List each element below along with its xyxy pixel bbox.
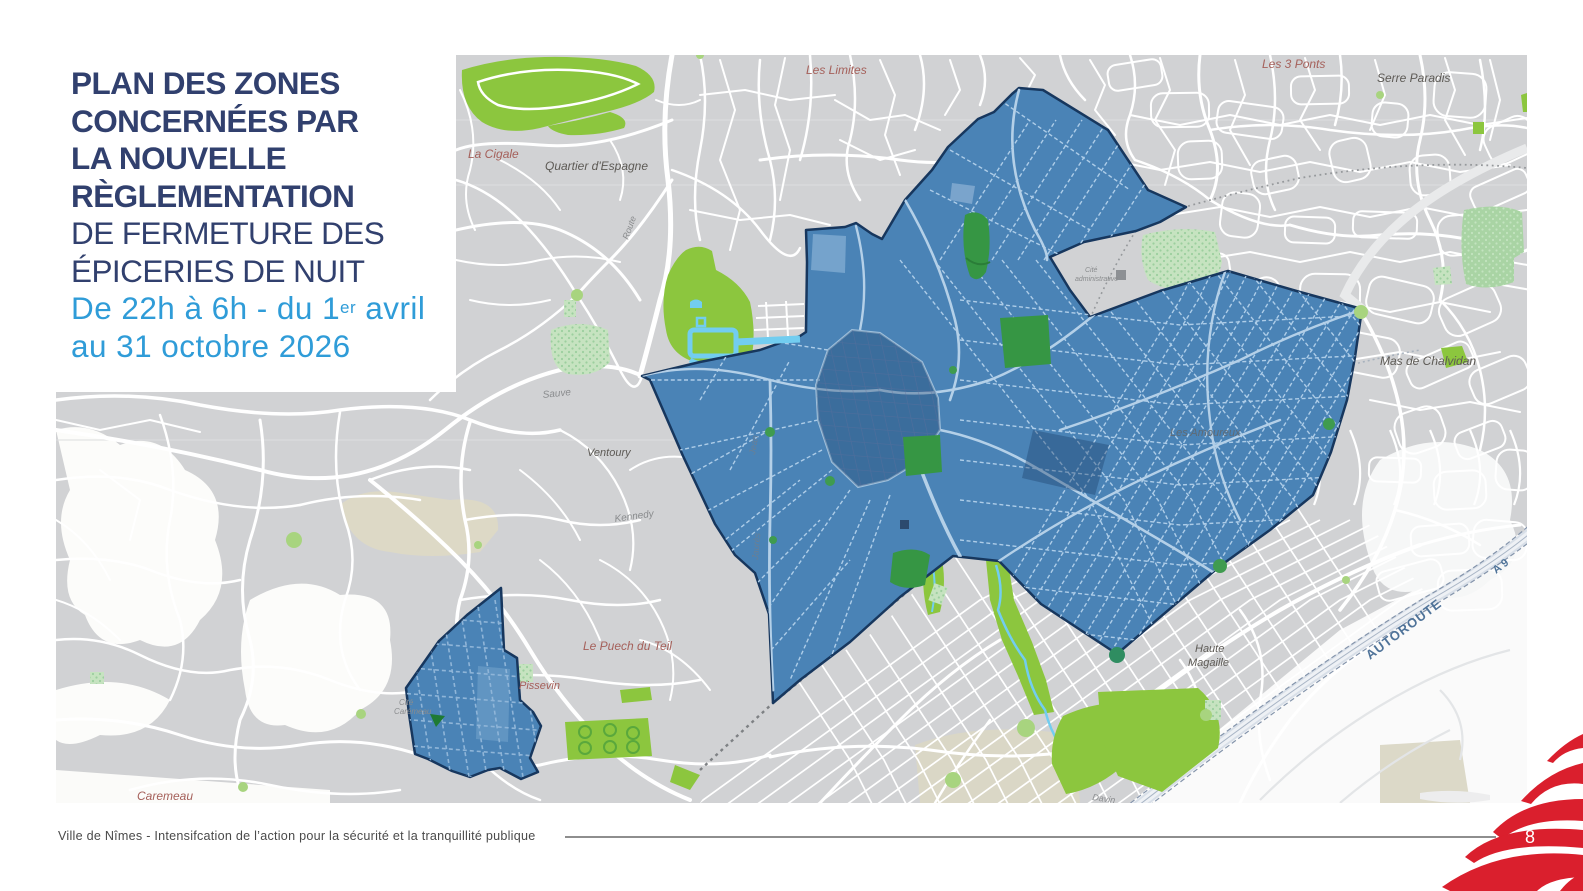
svg-text:Cité: Cité (1085, 267, 1098, 274)
svg-text:Les Limites: Les Limites (806, 63, 867, 77)
svg-text:Davin: Davin (1092, 792, 1116, 805)
svg-text:Le Puech du Teil: Le Puech du Teil (583, 639, 672, 653)
svg-text:Quartier d'Espagne: Quartier d'Espagne (545, 159, 648, 173)
svg-text:Les Amoureux: Les Amoureux (1170, 427, 1241, 439)
svg-text:8: 8 (1525, 827, 1535, 847)
svg-text:Cité: Cité (399, 698, 414, 707)
svg-text:Ventoury: Ventoury (587, 447, 632, 459)
svg-text:administrative: administrative (1075, 276, 1118, 283)
svg-text:Magaille: Magaille (1188, 657, 1229, 669)
svg-text:Mas de Chalvidan: Mas de Chalvidan (1380, 354, 1476, 368)
svg-text:Haute: Haute (1195, 643, 1224, 655)
svg-text:Caremeau: Caremeau (137, 789, 193, 803)
svg-text:Carémeau: Carémeau (394, 707, 432, 716)
svg-text:Serre Paradis: Serre Paradis (1377, 71, 1450, 85)
svg-text:Les 3 Ponts: Les 3 Ponts (1262, 57, 1325, 71)
svg-text:Pissevin: Pissevin (519, 680, 560, 692)
